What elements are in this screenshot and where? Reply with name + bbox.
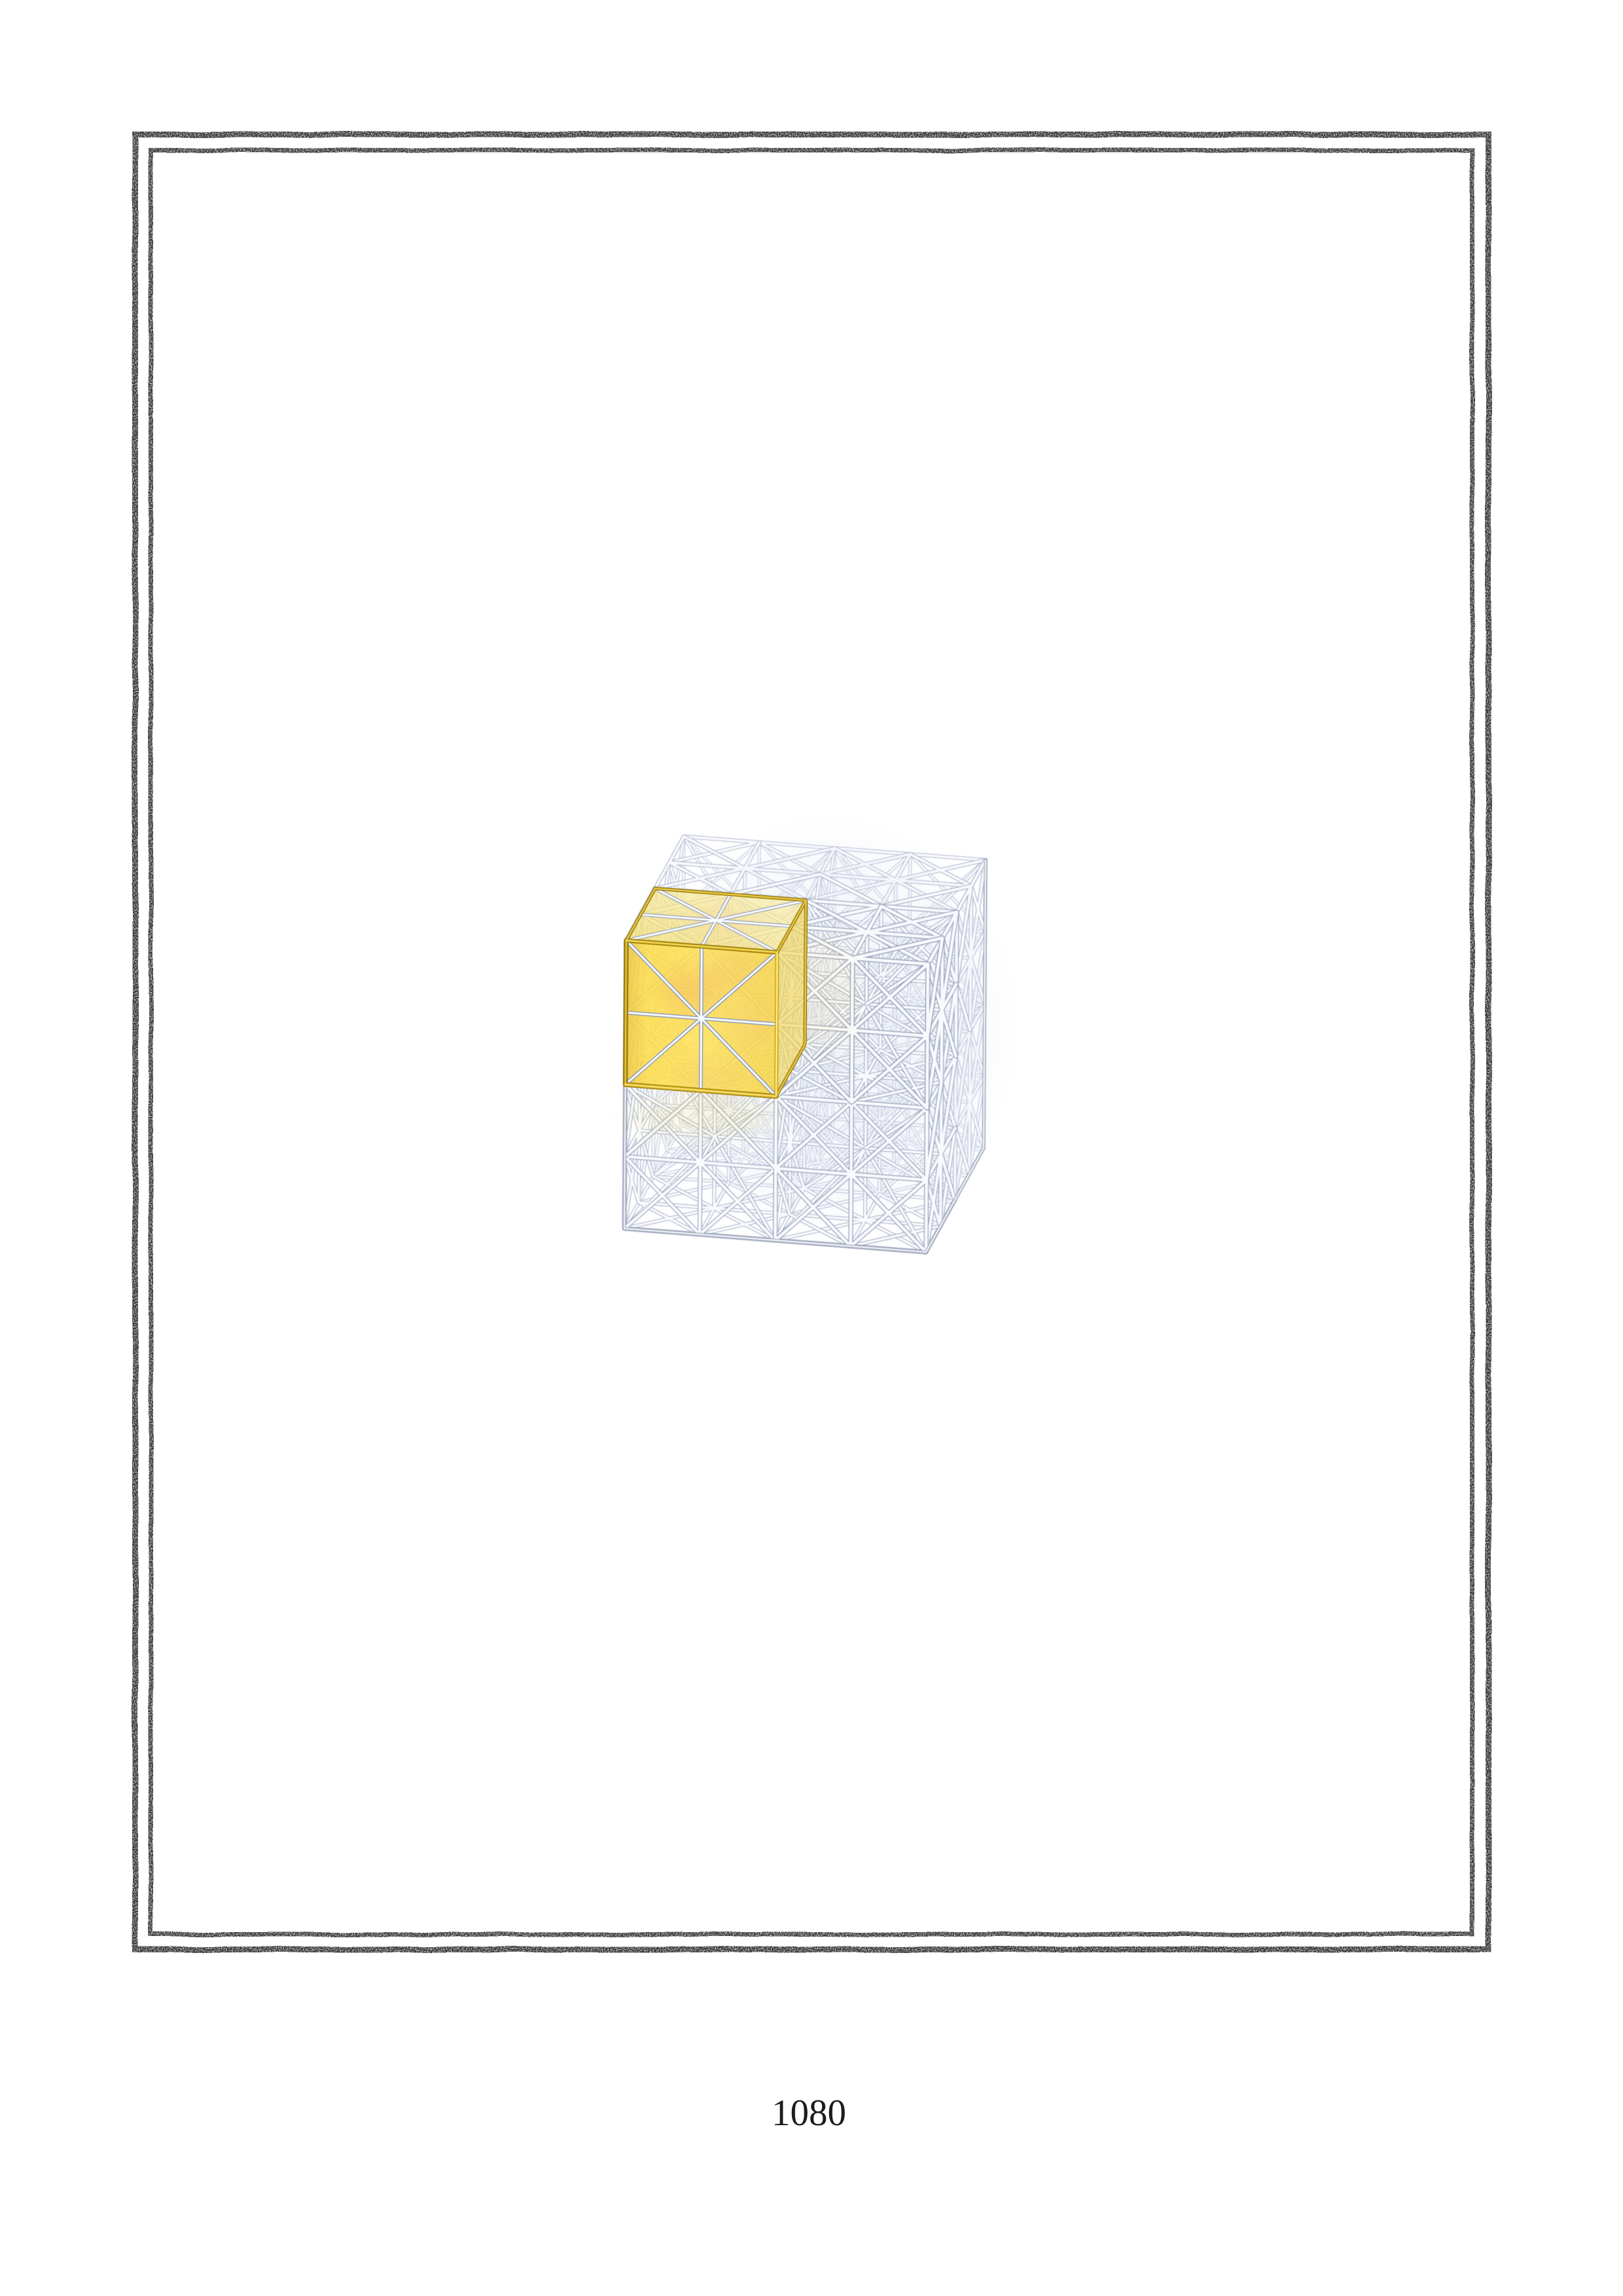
svg-text:1080: 1080 — [772, 2092, 846, 2134]
